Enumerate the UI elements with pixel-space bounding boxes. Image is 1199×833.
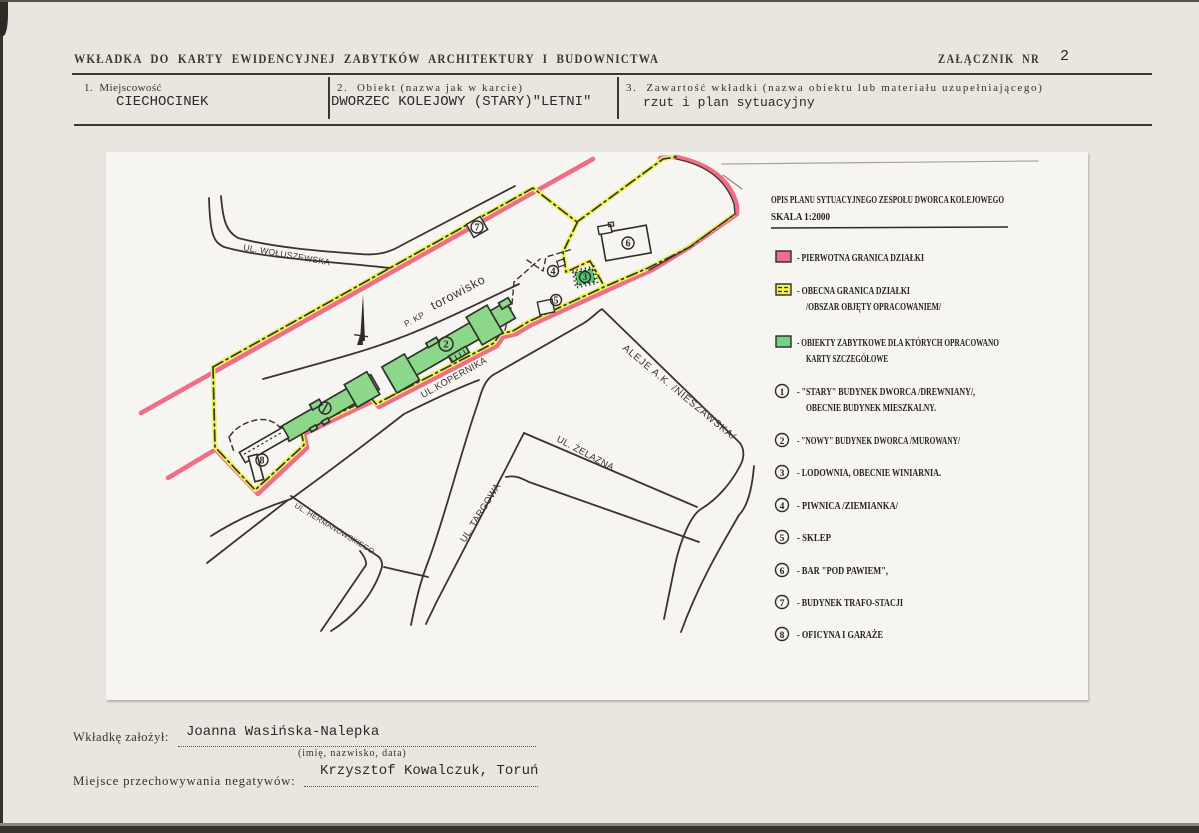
svg-text:- "STARY" BUDYNEK DWORCA /DREW: - "STARY" BUDYNEK DWORCA /DREWNIANY/, — [797, 387, 975, 398]
svg-text:8: 8 — [780, 631, 785, 641]
svg-text:SKALA 1:2000: SKALA 1:2000 — [771, 212, 830, 223]
svg-text:2: 2 — [780, 437, 785, 447]
svg-text:5: 5 — [780, 534, 785, 544]
svg-text:3: 3 — [583, 272, 588, 282]
svg-text:- PIWNICA /ZIEMIANKA/: - PIWNICA /ZIEMIANKA/ — [797, 501, 898, 512]
svg-text:4: 4 — [780, 502, 785, 512]
svg-text:1: 1 — [780, 388, 785, 398]
svg-text:6: 6 — [626, 238, 631, 249]
svg-text:5: 5 — [554, 295, 559, 306]
svg-text:UL. HERMANOWSKIEGO: UL. HERMANOWSKIEGO — [293, 501, 376, 556]
svg-text:- BAR "POD PAWIEM",: - BAR "POD PAWIEM", — [797, 566, 888, 577]
svg-text:8: 8 — [260, 455, 265, 466]
svg-text:7: 7 — [780, 599, 785, 609]
svg-text:7: 7 — [475, 222, 480, 233]
svg-text:UL. ŻELAZNA: UL. ŻELAZNA — [555, 434, 617, 474]
svg-text:UL. TARGOWA: UL. TARGOWA — [458, 481, 503, 544]
svg-text:3: 3 — [780, 469, 785, 479]
svg-text:OBECNIE BUDYNEK MIESZKALNY.: OBECNIE BUDYNEK MIESZKALNY. — [806, 403, 936, 414]
svg-text:4: 4 — [551, 266, 556, 277]
svg-text:KARTY SZCZEGÓŁOWE: KARTY SZCZEGÓŁOWE — [806, 353, 888, 365]
svg-text:- OBECNA GRANICA DZIAŁKI: - OBECNA GRANICA DZIAŁKI — [797, 286, 910, 297]
svg-text:- OBIEKTY ZABYTKOWE DLA KTÓRYC: - OBIEKTY ZABYTKOWE DLA KTÓRYCH OPRACOWA… — [797, 337, 999, 349]
svg-text:- "NOWY" BUDYNEK DWORCA /MUROW: - "NOWY" BUDYNEK DWORCA /MUROWANY/ — [797, 436, 960, 447]
svg-text:- LODOWNIA, OBECNIE WINIARNIA.: - LODOWNIA, OBECNIE WINIARNIA. — [797, 468, 941, 479]
svg-text:- OFICYNA I GARAŻE: - OFICYNA I GARAŻE — [797, 629, 883, 641]
svg-text:- PIERWOTNA GRANICA DZIAŁKI: - PIERWOTNA GRANICA DZIAŁKI — [797, 253, 924, 264]
svg-text:UL. WOŁUSZEWSKA: UL. WOŁUSZEWSKA — [243, 242, 331, 267]
svg-text:- BUDYNEK TRAFO-STACJI: - BUDYNEK TRAFO-STACJI — [797, 598, 903, 609]
svg-text:- SKLEP: - SKLEP — [797, 533, 831, 544]
svg-text:2: 2 — [443, 339, 449, 351]
svg-text:/OBSZAR OBJĘTY OPRACOWANIEM/: /OBSZAR OBJĘTY OPRACOWANIEM/ — [805, 302, 941, 313]
svg-text:6: 6 — [780, 567, 785, 577]
svg-text:ALEJE A.K. /NIESZAWSKA/: ALEJE A.K. /NIESZAWSKA/ — [620, 343, 738, 443]
svg-text:OPIS PLANU SYTUACYJNEGO ZESPOŁ: OPIS PLANU SYTUACYJNEGO ZESPOŁU DWORCA K… — [771, 195, 1004, 206]
